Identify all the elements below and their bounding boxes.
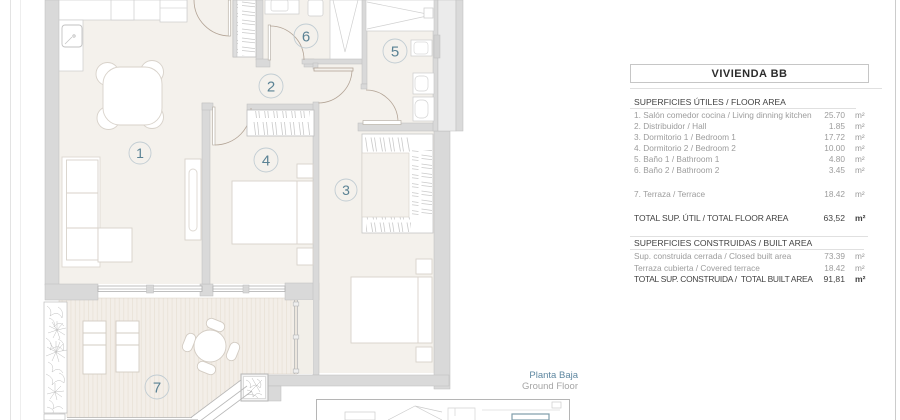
- svg-text:3: 3: [342, 182, 350, 198]
- svg-text:4: 4: [262, 153, 270, 170]
- svg-text:5: 5: [391, 44, 399, 61]
- svg-text:6: 6: [302, 29, 310, 46]
- svg-text:1: 1: [136, 145, 144, 161]
- svg-text:2: 2: [267, 79, 275, 96]
- svg-text:7: 7: [153, 380, 161, 397]
